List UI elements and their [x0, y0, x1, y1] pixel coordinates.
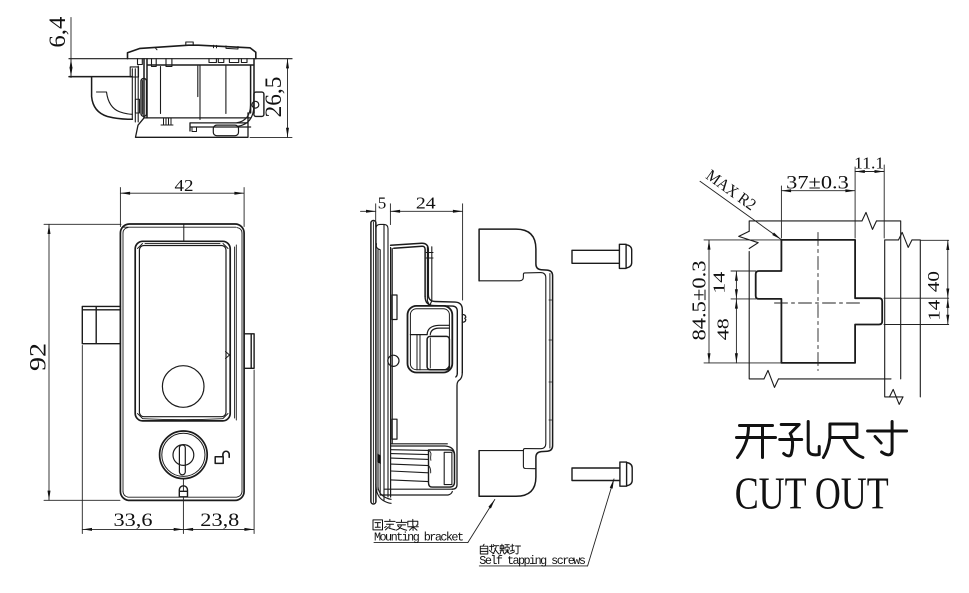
svg-text:92: 92 [26, 343, 52, 371]
svg-text:23,8: 23,8 [200, 510, 239, 531]
svg-text:6,4: 6,4 [45, 16, 71, 47]
svg-text:14: 14 [710, 271, 729, 294]
svg-text:26,5: 26,5 [261, 77, 287, 118]
svg-text:CUT OUT: CUT OUT [735, 468, 889, 519]
svg-text:37±0.3: 37±0.3 [786, 173, 849, 194]
svg-text:40: 40 [924, 271, 943, 292]
svg-text:84.5±0.3: 84.5±0.3 [688, 261, 710, 341]
svg-text:24: 24 [416, 193, 436, 212]
svg-text:5: 5 [378, 193, 387, 212]
svg-text:Mounting bracket: Mounting bracket [374, 531, 463, 545]
svg-text:42: 42 [175, 176, 194, 195]
svg-text:33,6: 33,6 [114, 510, 153, 531]
svg-text:Self tapping screws: Self tapping screws [479, 554, 586, 568]
svg-text:11.1: 11.1 [854, 154, 884, 173]
svg-text:14: 14 [925, 299, 944, 321]
svg-text:48: 48 [714, 318, 733, 340]
